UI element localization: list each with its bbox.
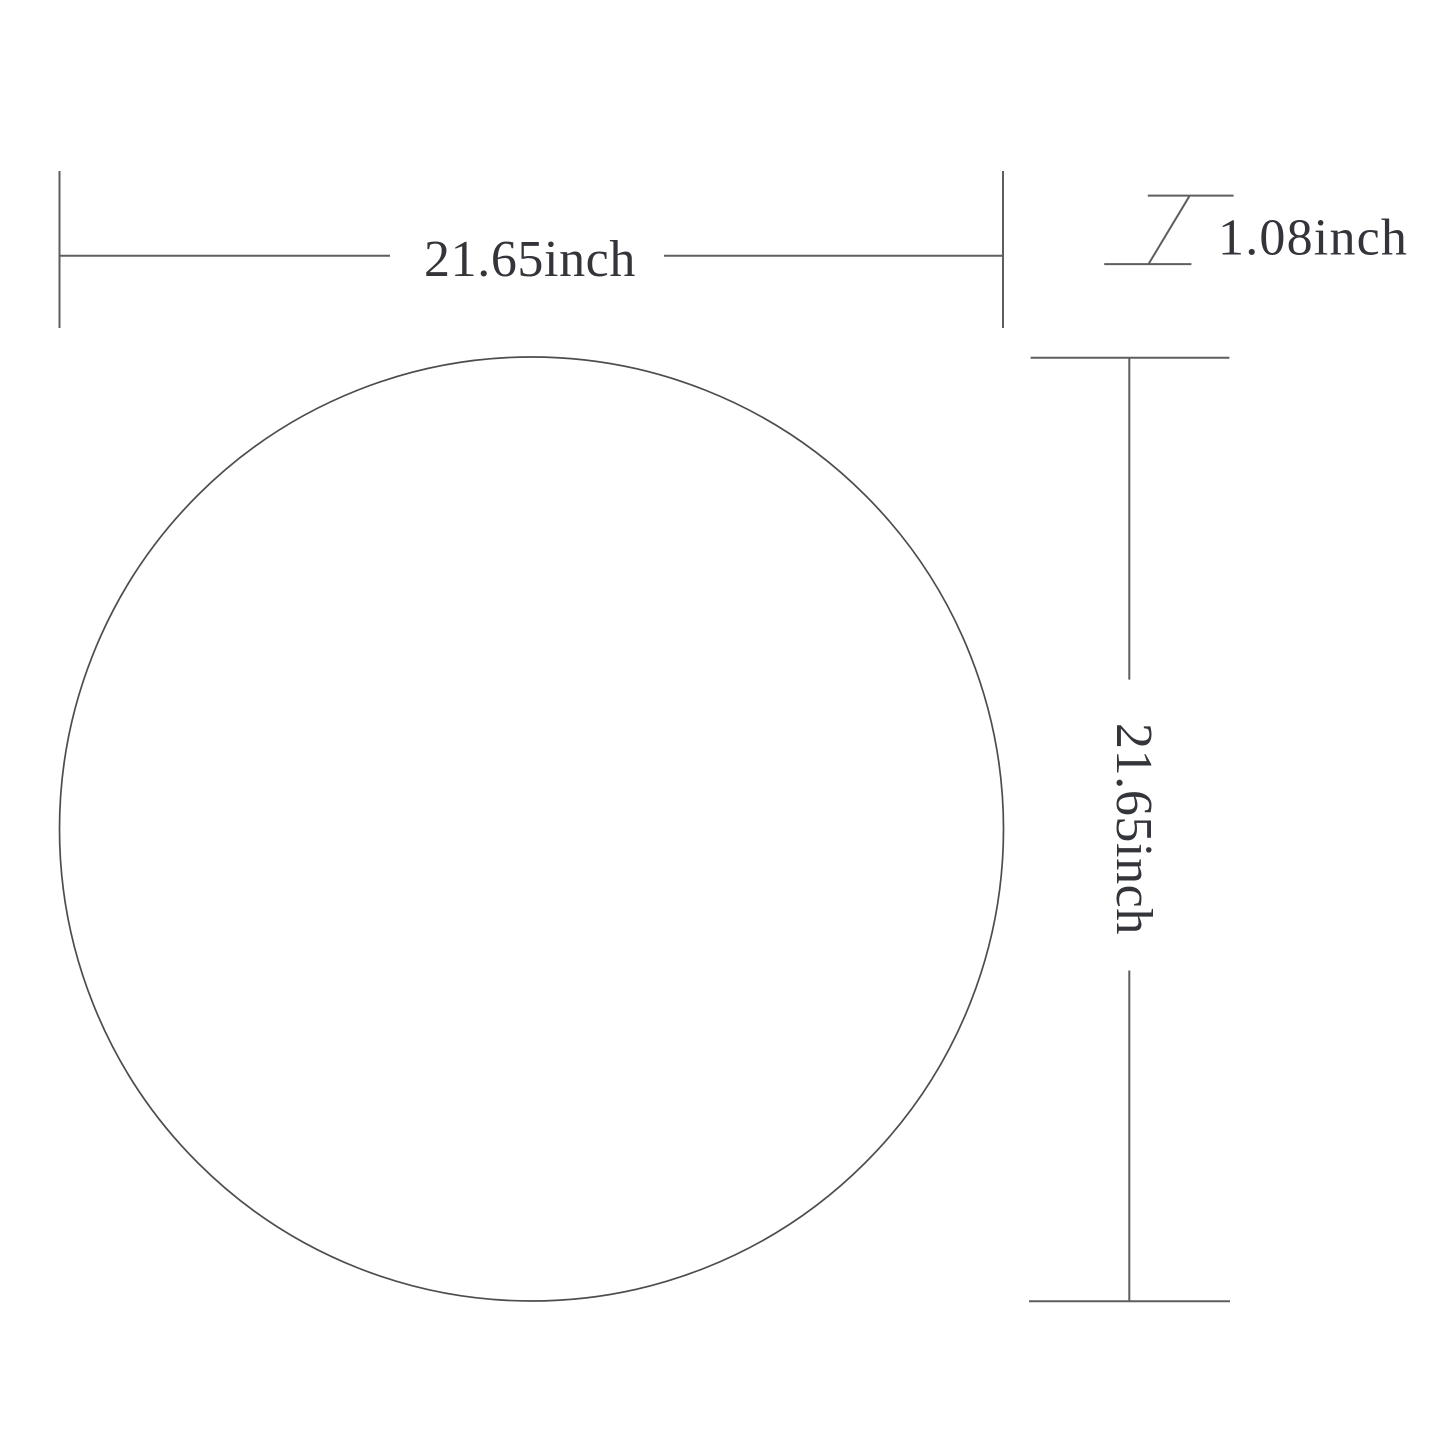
svg-text:21.65inch: 21.65inch: [424, 231, 636, 288]
svg-text:1.08inch: 1.08inch: [1218, 210, 1408, 267]
svg-text:21.65inch: 21.65inch: [1105, 723, 1162, 935]
